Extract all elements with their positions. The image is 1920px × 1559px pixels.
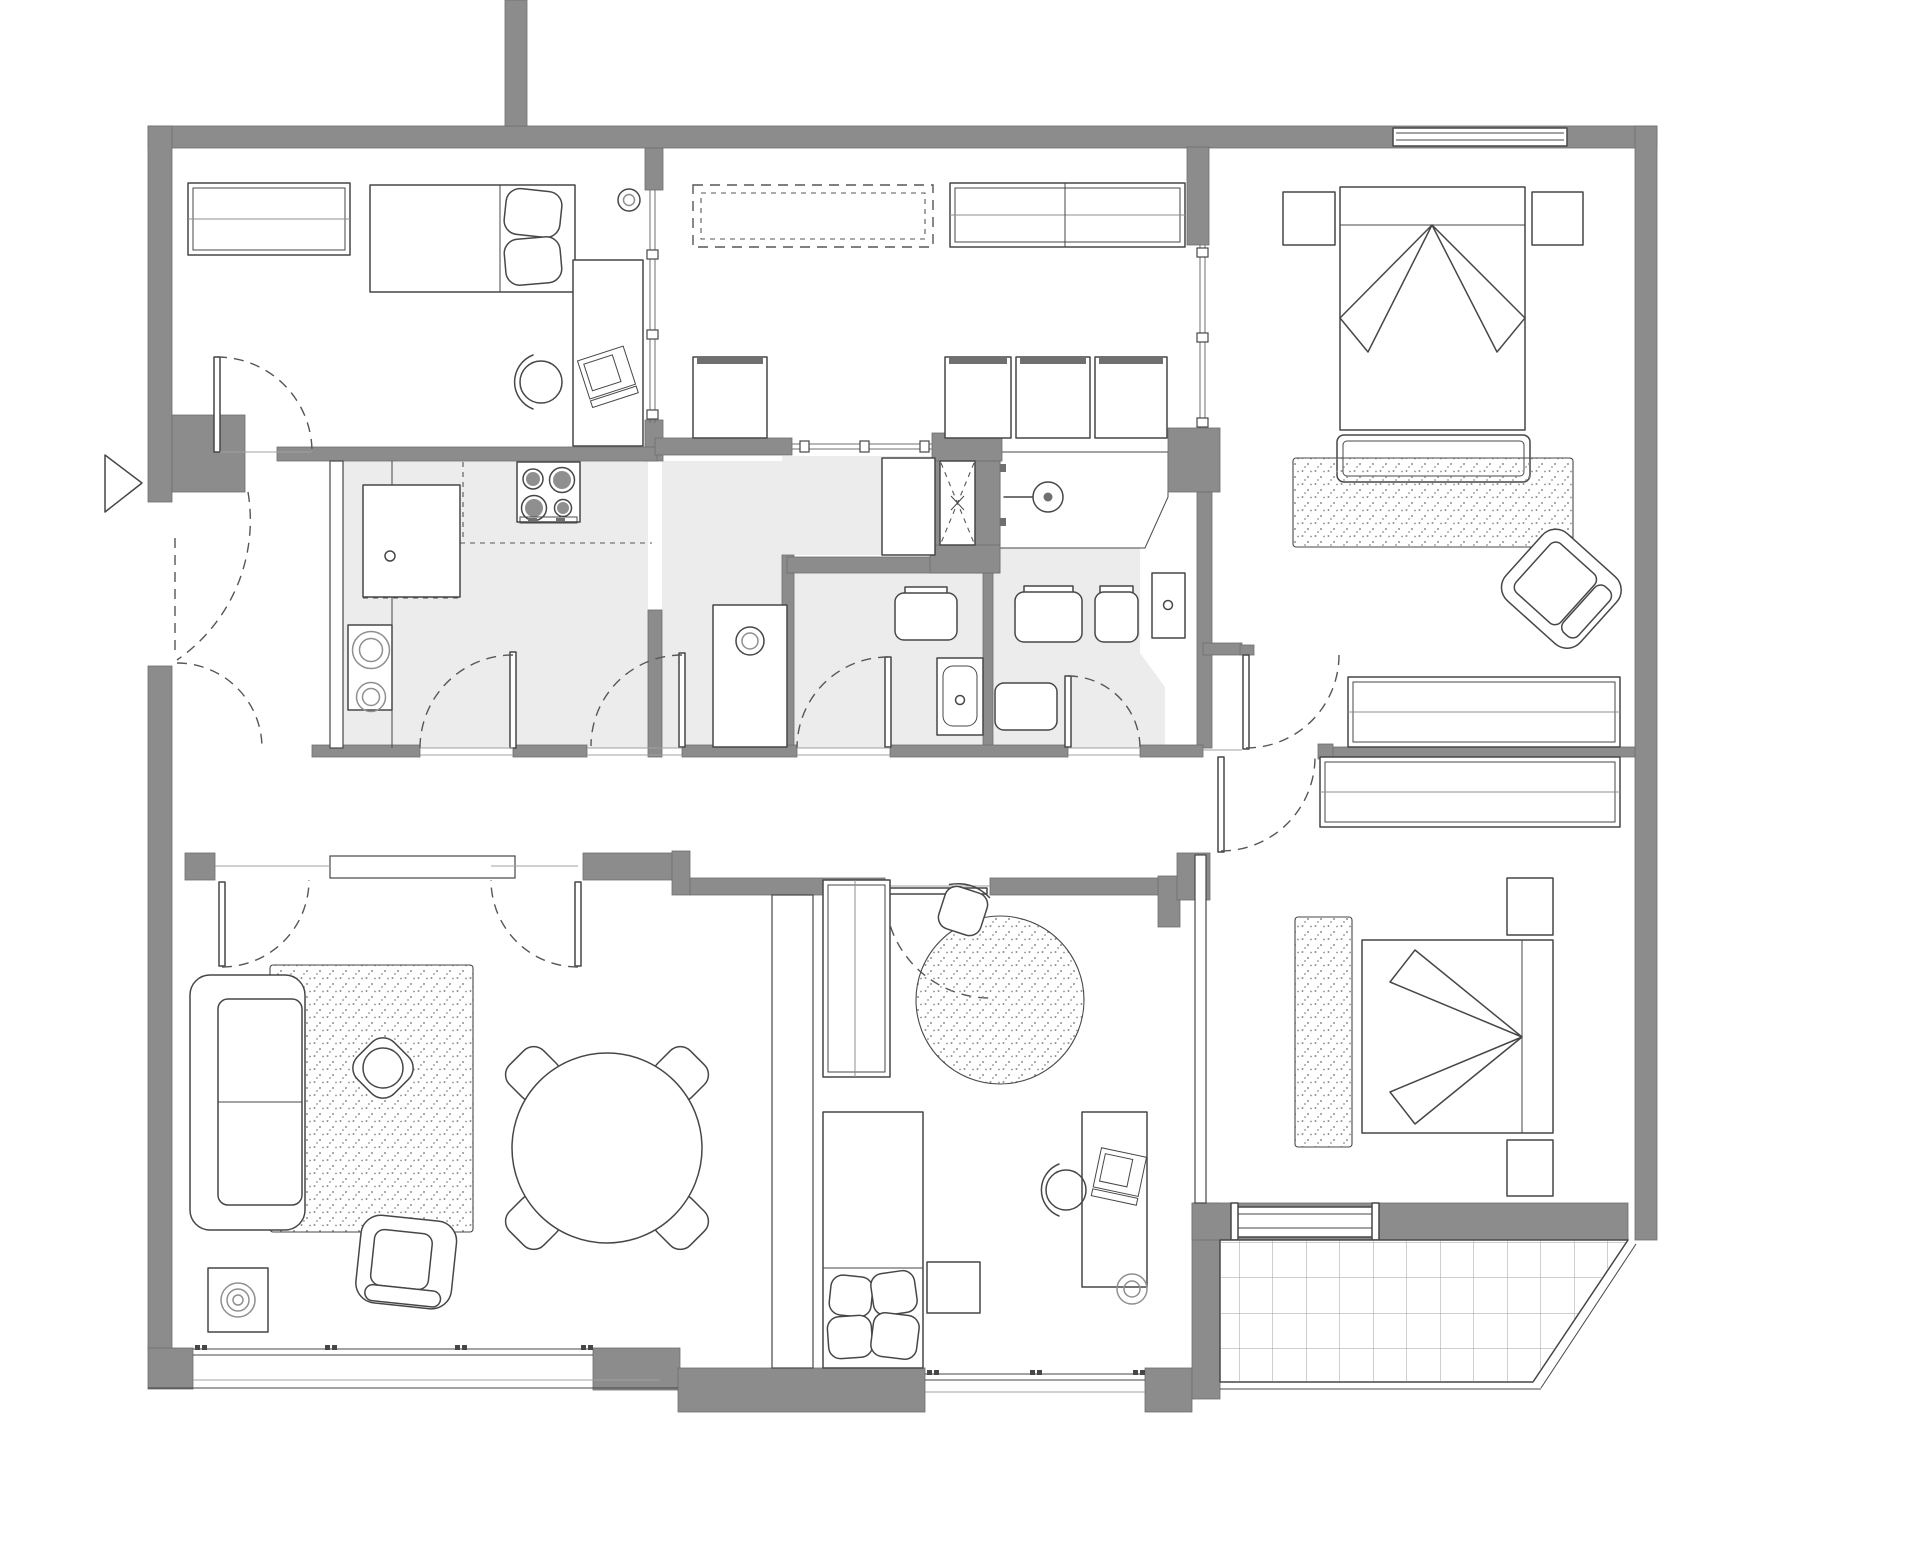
kids-room-window — [925, 1370, 1145, 1392]
dressing-room — [693, 183, 1185, 438]
door-bedroom-3 — [1218, 757, 1315, 852]
sink-icon — [1015, 586, 1082, 642]
shower-tray — [1000, 452, 1168, 548]
master-bedroom-window — [1393, 128, 1567, 146]
glass-partition-1 — [647, 190, 658, 423]
bedroom-3 — [1295, 757, 1620, 1196]
armchair — [354, 1213, 459, 1311]
living-top-wall — [330, 856, 515, 878]
bedroom-1 — [188, 183, 643, 446]
bedroom-3-left-wall — [1195, 855, 1206, 1203]
wardrobe-icon — [188, 183, 350, 255]
glass-partition-2 — [1197, 245, 1208, 428]
appliance-rings — [348, 625, 392, 712]
sink-icon-2 — [1095, 586, 1138, 642]
living-kids-divider — [772, 895, 813, 1368]
plant-side-table — [208, 1268, 268, 1332]
washing-machine-icon — [713, 605, 787, 747]
sofa — [190, 975, 305, 1230]
master-bedroom — [1283, 187, 1629, 747]
desk-chair — [515, 355, 562, 409]
wardrobe-icon — [950, 183, 1185, 247]
kitchen-left-wall — [330, 461, 343, 748]
shower-head-center — [1044, 493, 1053, 502]
door-master-bedroom — [1243, 655, 1339, 749]
rug-round — [916, 916, 1084, 1084]
wardrobe-icon — [1320, 757, 1620, 827]
overhead-cabinet-dashed — [693, 185, 933, 247]
nightstand — [1532, 192, 1583, 245]
desk-with-laptop — [1082, 1112, 1147, 1304]
dining-set — [500, 1041, 714, 1255]
door-living-right — [491, 880, 581, 967]
door-entrance — [175, 492, 262, 748]
floor-plan-canvas: Apartment floor plan — top view architec… — [0, 0, 1920, 1559]
floor-plan-svg: Apartment floor plan — top view architec… — [0, 0, 1920, 1559]
terrace — [1220, 1240, 1636, 1389]
dining-table — [512, 1053, 702, 1243]
kitchen-sink-unit — [363, 485, 460, 597]
seat-boxes — [693, 357, 1167, 438]
stool-hamper — [995, 683, 1057, 730]
nightstand — [1507, 1140, 1553, 1196]
entrance-arrow-icon — [105, 455, 142, 512]
bedroom-3-window — [1231, 1203, 1379, 1240]
nightstand — [1507, 878, 1553, 935]
door-living-left — [219, 880, 309, 967]
desk-with-laptop — [573, 260, 643, 446]
sink-icon — [895, 587, 957, 640]
plant-icon — [618, 189, 640, 211]
wardrobe-icon — [1348, 677, 1620, 747]
rug-rect — [1295, 917, 1352, 1147]
shower-area — [995, 452, 1168, 548]
rug-rect — [1293, 458, 1573, 547]
kids-room — [823, 879, 1147, 1368]
double-bed — [1362, 940, 1553, 1133]
nightstand — [1283, 192, 1335, 245]
single-bed — [823, 1112, 923, 1368]
duct-shaft — [940, 461, 975, 545]
glass-partition-3 — [792, 441, 932, 452]
toilet-icon-2 — [1152, 573, 1185, 638]
living-room — [190, 965, 714, 1332]
stove-icon — [517, 462, 580, 523]
single-bed — [370, 185, 575, 292]
toilet-icon — [937, 658, 983, 735]
desk-chair — [1041, 1164, 1086, 1216]
double-bed — [1340, 187, 1525, 430]
terrace-grid — [1220, 1240, 1628, 1382]
wardrobe-icon — [823, 880, 890, 1077]
storage-cabinet — [882, 458, 935, 555]
nightstand — [927, 1262, 980, 1313]
